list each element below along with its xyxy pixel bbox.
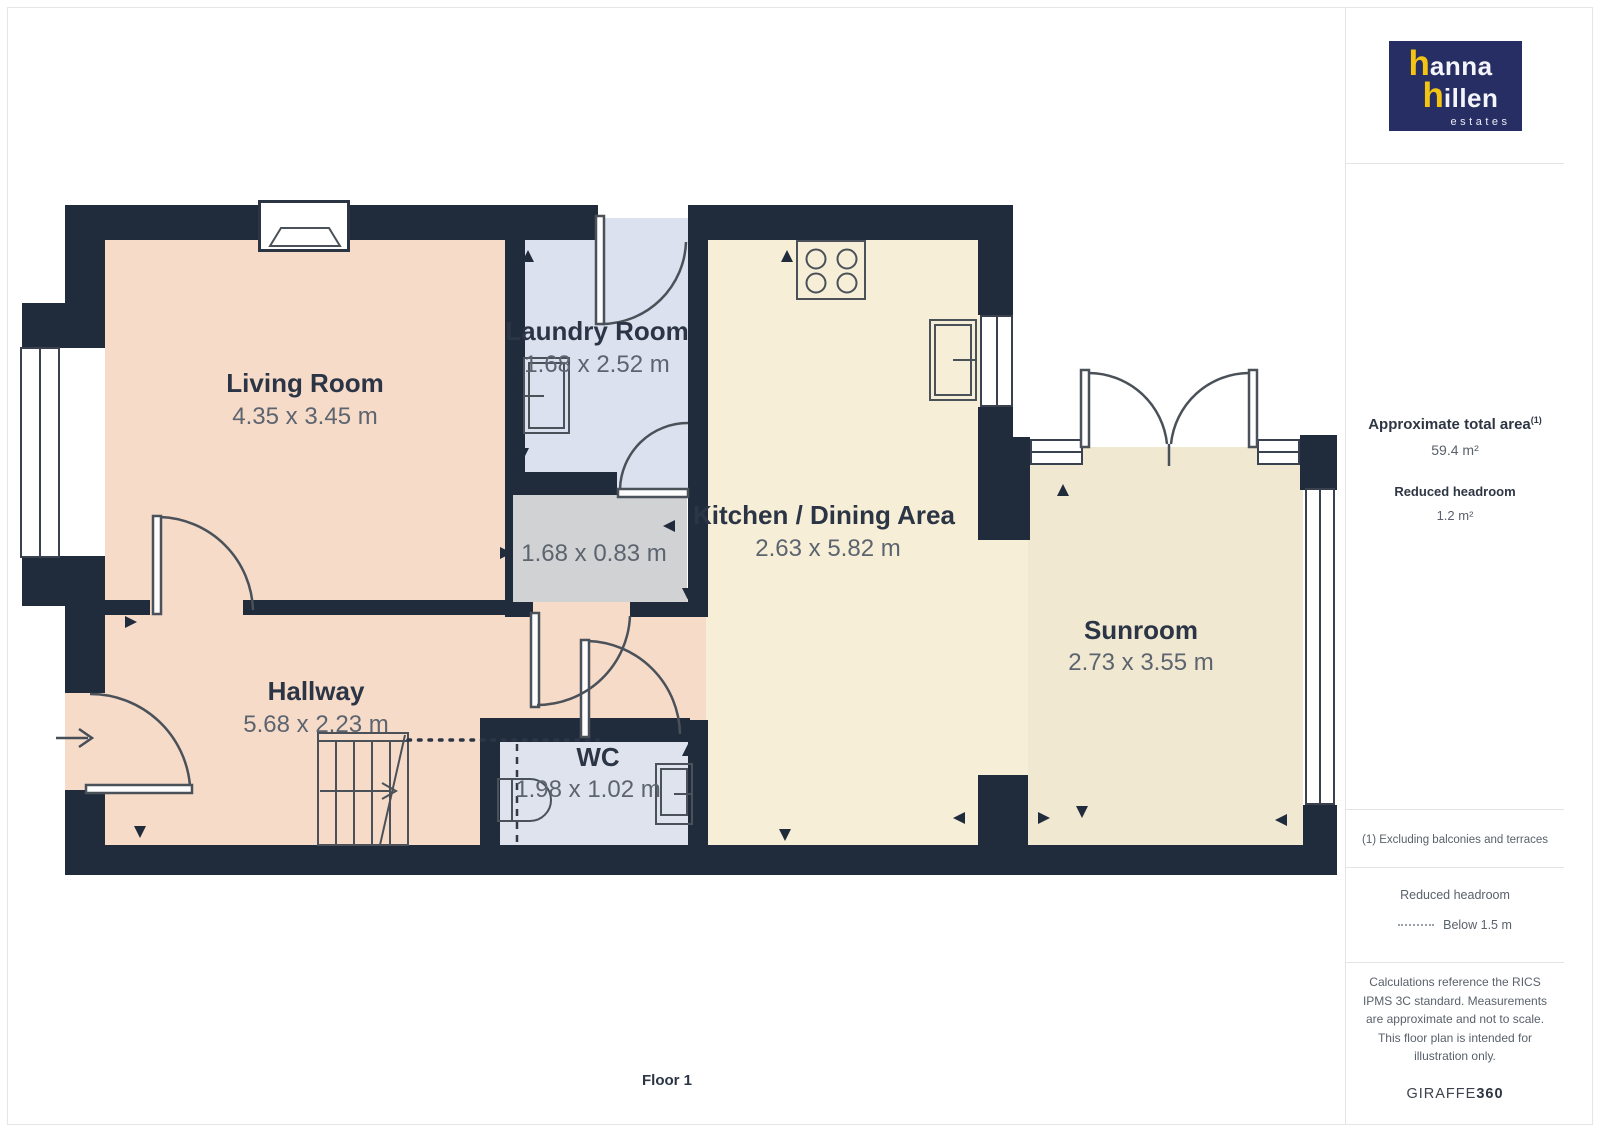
- floorplan-page: { "logo": { "line1_h": "h", "line1_rest"…: [0, 0, 1600, 1132]
- room-label-laundry: Laundry Room: [505, 316, 688, 347]
- wall: [688, 720, 708, 845]
- reduced-headroom-label: Reduced headroom: [1346, 484, 1564, 499]
- wall: [978, 775, 1028, 845]
- room-dims-living: 4.35 x 3.45 m: [232, 403, 377, 431]
- sidebar-logo-section: hanna hillen estates: [1346, 8, 1564, 164]
- room-dims-storage: 1.68 x 0.83 m: [521, 540, 666, 568]
- floorplan: Living Room 4.35 x 3.45 m Laundry Room 1…: [0, 0, 1345, 1132]
- room-label-kitchen: Kitchen / Dining Area: [693, 500, 955, 531]
- footnote-text: (1) Excluding balconies and terraces: [1362, 834, 1548, 846]
- room-label-hallway: Hallway: [268, 676, 365, 707]
- chimney-recess: [258, 200, 350, 252]
- wall: [505, 240, 525, 472]
- room-dims-laundry: 1.68 x 2.52 m: [524, 351, 669, 379]
- wall: [22, 303, 105, 348]
- wall: [630, 602, 708, 617]
- window: [1257, 439, 1300, 465]
- window: [1030, 439, 1083, 465]
- total-area-text: Approximate total area: [1368, 416, 1531, 433]
- legend-row: Below 1.5 m: [1346, 916, 1564, 934]
- wall: [65, 556, 105, 693]
- floor-label: Floor 1: [642, 1072, 692, 1089]
- laundry-door-threshold: [617, 472, 688, 495]
- wall: [1300, 435, 1337, 490]
- sidebar-disclaimer-section: Calculations reference the RICS IPMS 3C …: [1346, 963, 1564, 1124]
- brand-suffix: 360: [1476, 1086, 1503, 1102]
- kitchen-sunroom-passage: [978, 540, 1030, 775]
- room-dims-sunroom: 2.73 x 3.55 m: [1068, 649, 1213, 677]
- wall: [505, 602, 533, 617]
- wall: [480, 718, 690, 742]
- logo-h2: h: [1423, 76, 1444, 115]
- window: [980, 315, 1013, 407]
- sidebar-legend-section: Reduced headroom Below 1.5 m: [1346, 868, 1564, 963]
- room-sunroom: [1028, 447, 1303, 845]
- wall: [1303, 805, 1337, 875]
- info-sidebar: hanna hillen estates Approximate total a…: [1345, 8, 1564, 1124]
- room-dims-kitchen: 2.63 x 5.82 m: [755, 535, 900, 563]
- logo-line-2: hillen: [1409, 83, 1522, 115]
- wall: [978, 205, 1013, 315]
- wall: [65, 845, 1337, 875]
- wall: [65, 205, 105, 315]
- giraffe360-brand: GIRAFFE360: [1346, 1086, 1564, 1102]
- room-label-sunroom: Sunroom: [1084, 615, 1198, 646]
- total-area-value: 59.4 m²: [1346, 442, 1564, 458]
- legend-title: Reduced headroom: [1346, 888, 1564, 902]
- total-area-label: Approximate total area(1): [1346, 415, 1564, 433]
- sidebar-area-section: Approximate total area(1) 59.4 m² Reduce…: [1346, 165, 1564, 810]
- wall: [505, 472, 617, 495]
- disclaimer-text: Calculations reference the RICS IPMS 3C …: [1346, 973, 1564, 1066]
- room-label-living: Living Room: [226, 368, 383, 399]
- wall: [480, 742, 500, 845]
- brand-name: GIRAFFE: [1406, 1086, 1476, 1102]
- room-label-wc: WC: [576, 742, 619, 773]
- wall: [688, 205, 1013, 240]
- logo-rest2: illen: [1444, 83, 1499, 113]
- wall: [978, 407, 1013, 540]
- room-dims-wc: 1.98 x 1.02 m: [515, 776, 660, 804]
- sidebar-footnote-section: (1) Excluding balconies and terraces: [1346, 810, 1564, 868]
- entry-threshold: [65, 693, 105, 790]
- total-area-footnote-marker: (1): [1531, 415, 1542, 425]
- room-dims-hallway: 5.68 x 2.23 m: [243, 711, 388, 739]
- wall: [105, 600, 150, 615]
- legend-value: Below 1.5 m: [1443, 918, 1512, 932]
- dashed-line-icon: [1398, 924, 1434, 926]
- wall: [1013, 437, 1030, 540]
- window: [1305, 488, 1335, 805]
- reduced-headroom-value: 1.2 m²: [1346, 508, 1564, 523]
- logo-estates: estates: [1409, 116, 1522, 128]
- wall: [243, 600, 505, 615]
- wall: [505, 495, 513, 602]
- window: [20, 347, 60, 558]
- wall: [688, 240, 708, 617]
- hanna-hillen-logo: hanna hillen estates: [1389, 41, 1522, 131]
